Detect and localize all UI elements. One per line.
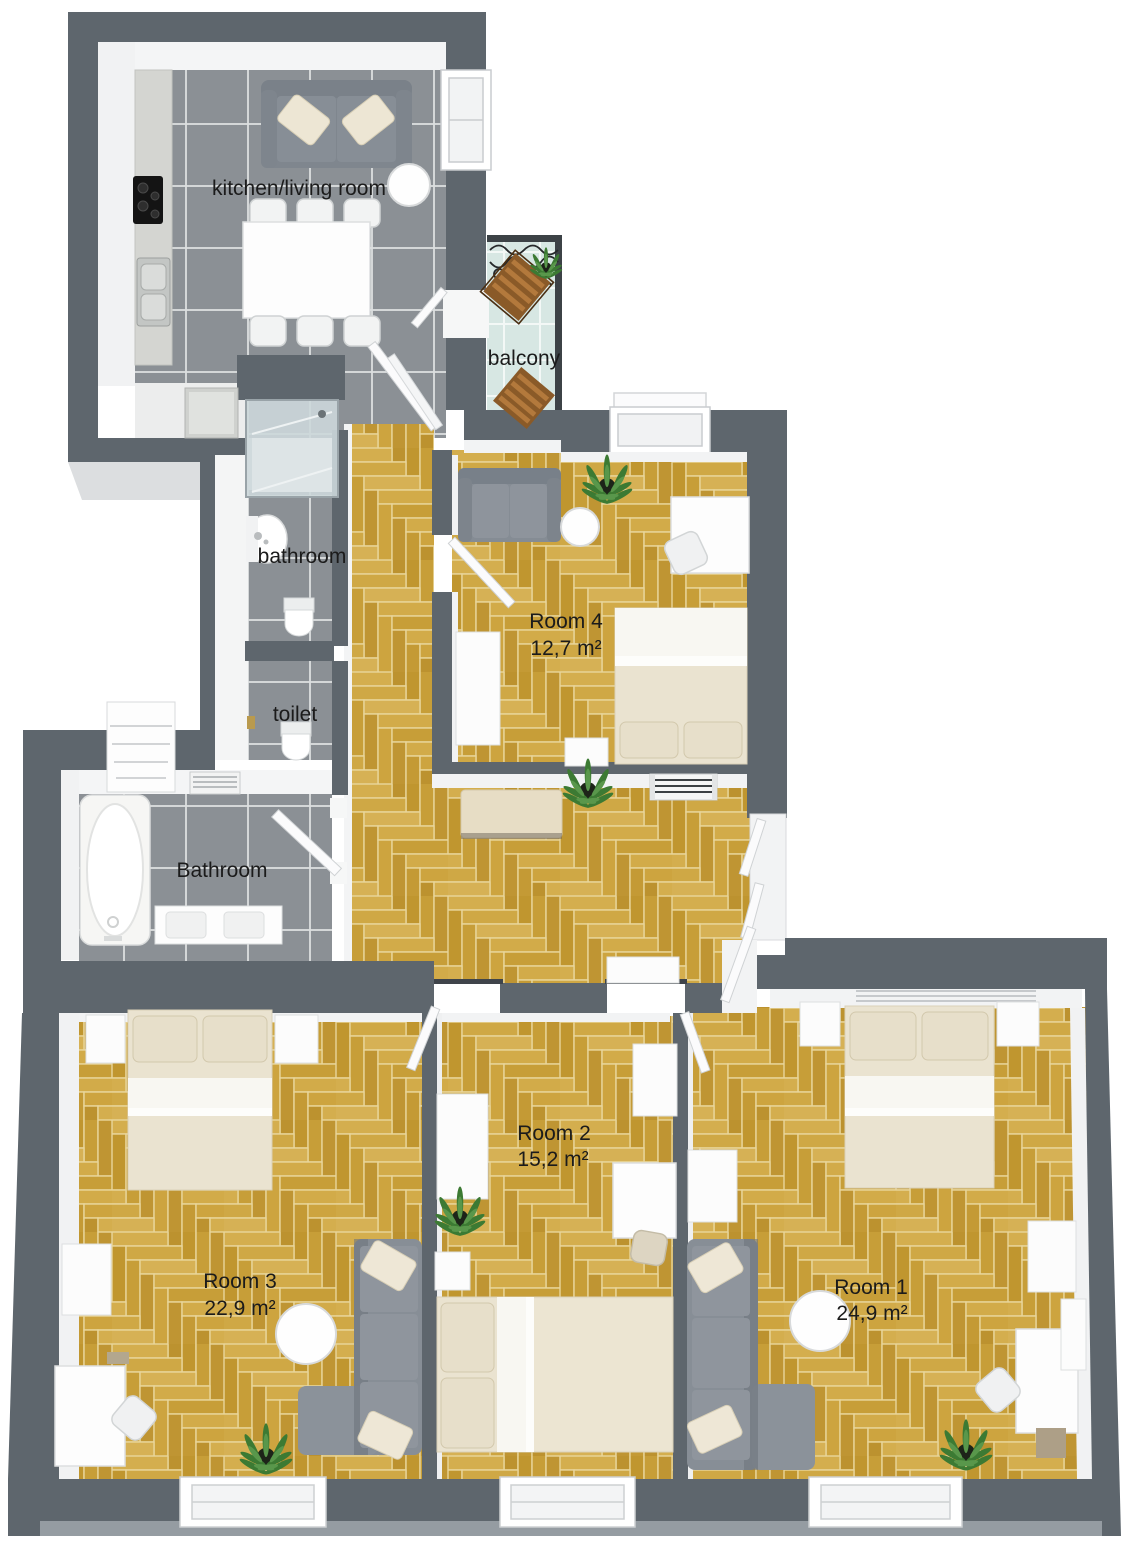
svg-text:22,9 m²: 22,9 m²	[204, 1297, 275, 1320]
svg-text:toilet: toilet	[273, 703, 318, 726]
svg-text:Bathroom: Bathroom	[176, 859, 267, 882]
svg-text:bathroom: bathroom	[258, 545, 347, 568]
svg-text:12,7 m²: 12,7 m²	[530, 637, 601, 660]
svg-text:24,9 m²: 24,9 m²	[836, 1302, 907, 1325]
svg-text:15,2 m²: 15,2 m²	[517, 1148, 588, 1171]
svg-text:Room 2: Room 2	[517, 1122, 591, 1145]
svg-text:Room 1: Room 1	[834, 1276, 908, 1299]
svg-text:Room 4: Room 4	[529, 610, 603, 633]
svg-text:kitchen/living room: kitchen/living room	[212, 177, 386, 200]
svg-text:balcony: balcony	[488, 347, 561, 370]
svg-text:Room 3: Room 3	[203, 1270, 277, 1293]
